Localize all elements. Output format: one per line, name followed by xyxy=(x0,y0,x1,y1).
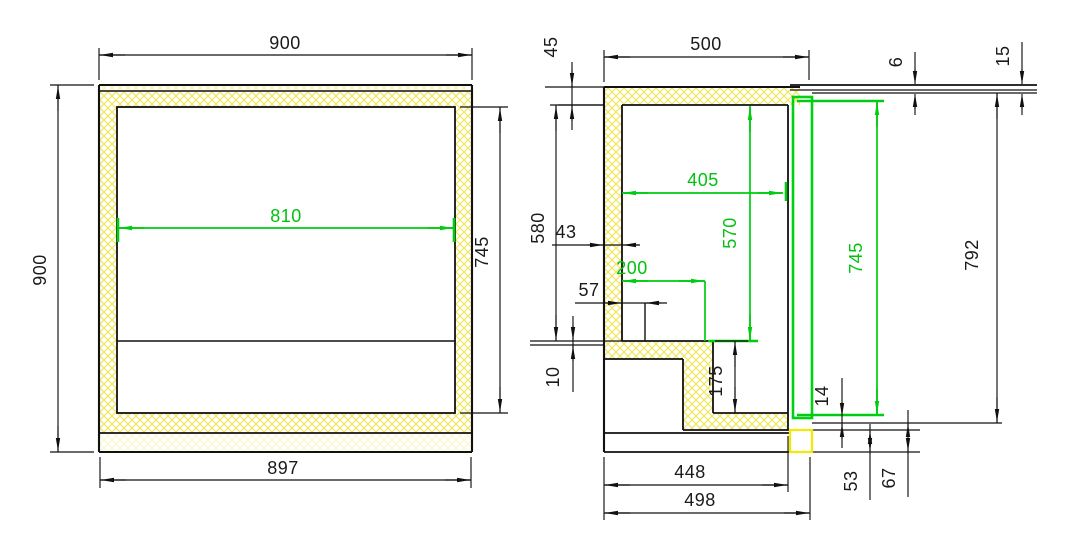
dim-side-liner-gap: 10 xyxy=(530,316,604,392)
dim-label: 498 xyxy=(684,490,716,510)
front-view: 900 900 810 745 xyxy=(30,33,508,488)
dim-label: 500 xyxy=(690,34,722,54)
worktop xyxy=(790,85,1037,93)
side-view: 45 500 6 15 xyxy=(528,34,1037,520)
dim-side-overall-height: 792 xyxy=(962,93,997,423)
dim-label: 900 xyxy=(269,33,301,53)
dim-label: 897 xyxy=(267,458,299,478)
front-interior-liner xyxy=(117,107,455,413)
dim-side-upper-interior-height: 570 xyxy=(708,106,758,341)
dim-door-bottom-gap: 14 xyxy=(812,378,842,448)
dim-label: 67 xyxy=(879,467,899,488)
dim-label: 810 xyxy=(270,206,302,226)
cabinet-technical-drawing: 900 900 810 745 xyxy=(0,0,1081,551)
front-structure xyxy=(99,85,472,452)
dim-front-overall-width: 900 xyxy=(99,33,472,80)
dim-label: 10 xyxy=(543,366,563,387)
dim-label: 53 xyxy=(841,470,861,491)
dim-label: 405 xyxy=(687,170,719,190)
dim-label: 14 xyxy=(812,385,832,406)
dim-label: 448 xyxy=(674,462,706,482)
side-bottom-insulation xyxy=(604,341,788,430)
dim-front-overall-height: 900 xyxy=(30,85,94,452)
front-insulation-hatch xyxy=(99,91,472,433)
front-plinth-strip xyxy=(99,433,472,452)
dim-side-base-depth: 498 xyxy=(604,457,810,520)
dim-label: 43 xyxy=(555,222,576,242)
dim-label: 580 xyxy=(528,212,548,244)
dim-front-base-width: 897 xyxy=(100,457,471,488)
side-structure xyxy=(604,87,1002,452)
dim-label: 792 xyxy=(962,239,982,271)
dim-label: 900 xyxy=(30,254,50,286)
dim-label: 6 xyxy=(886,57,906,68)
dim-label: 57 xyxy=(578,280,599,300)
door-panel xyxy=(793,97,812,418)
dim-label: 745 xyxy=(472,236,492,268)
dim-label: 15 xyxy=(993,45,1013,66)
dim-door-height: 745 xyxy=(797,101,884,415)
dim-side-top-wall: 45 xyxy=(541,36,604,130)
dim-label: 45 xyxy=(541,36,561,57)
dim-worktop-thickness: 6 xyxy=(886,52,915,115)
dim-side-back-wall: 43 xyxy=(552,222,640,245)
technical-drawing-canvas: 900 900 810 745 xyxy=(0,0,1081,551)
dim-side-interior-depth: 405 xyxy=(622,170,786,201)
base-corner-highlight xyxy=(790,430,812,452)
dim-side-base-gap: 53 xyxy=(841,424,870,500)
dim-label: 745 xyxy=(846,242,866,274)
dim-label: 175 xyxy=(706,365,726,397)
dim-front-interior-width: 810 xyxy=(118,206,454,242)
dim-side-step-depth: 200 xyxy=(616,258,705,341)
dim-side-depth: 500 xyxy=(604,34,809,82)
dim-label: 570 xyxy=(720,217,740,249)
dim-label: 200 xyxy=(616,258,648,278)
